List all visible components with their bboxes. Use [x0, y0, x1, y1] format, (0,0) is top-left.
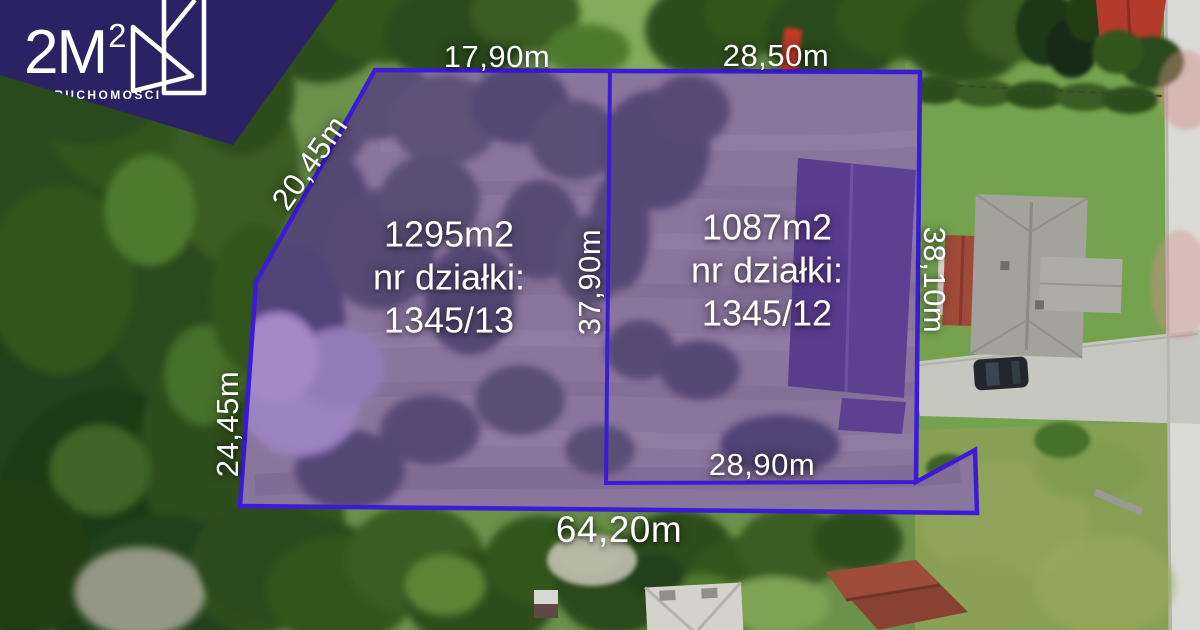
dimension-center-depth: 37,90m: [572, 229, 608, 335]
parcel1-area: 1295m2: [373, 213, 525, 256]
dimension-top-width-left: 17,90m: [444, 39, 550, 75]
listing-graphic: 17,90m 28,50m 20,45m 24,45m 37,90m 38,10…: [0, 0, 1200, 630]
dimension-bottom-total-width: 64,20m: [556, 509, 682, 551]
parcel1-number: 1345/13: [373, 299, 525, 342]
agency-logo-house-icon: [125, 0, 215, 105]
parcel-info-1345-12: 1087m2 nr działki: 1345/12: [691, 206, 843, 335]
parcel2-area: 1087m2: [691, 206, 843, 249]
parcel2-number: 1345/12: [691, 292, 843, 335]
bottom-house-grey: [645, 583, 743, 630]
parcel1-label: nr działki:: [373, 256, 525, 299]
dimension-top-width-right: 28,50m: [723, 38, 829, 74]
shed: [534, 590, 558, 618]
agency-logo-brand-sup: 2: [108, 17, 126, 54]
parcel2-label: nr działki:: [691, 249, 843, 292]
agency-logo-brand: 2M2: [24, 22, 125, 84]
dimension-left-edge: 24,45m: [210, 371, 246, 477]
parked-car: [973, 356, 1029, 391]
dimension-bottom-inner-width: 28,90m: [709, 447, 815, 483]
dimension-right-edge: 38,10m: [916, 227, 952, 333]
parcel-info-1345-13: 1295m2 nr działki: 1345/13: [373, 213, 525, 342]
